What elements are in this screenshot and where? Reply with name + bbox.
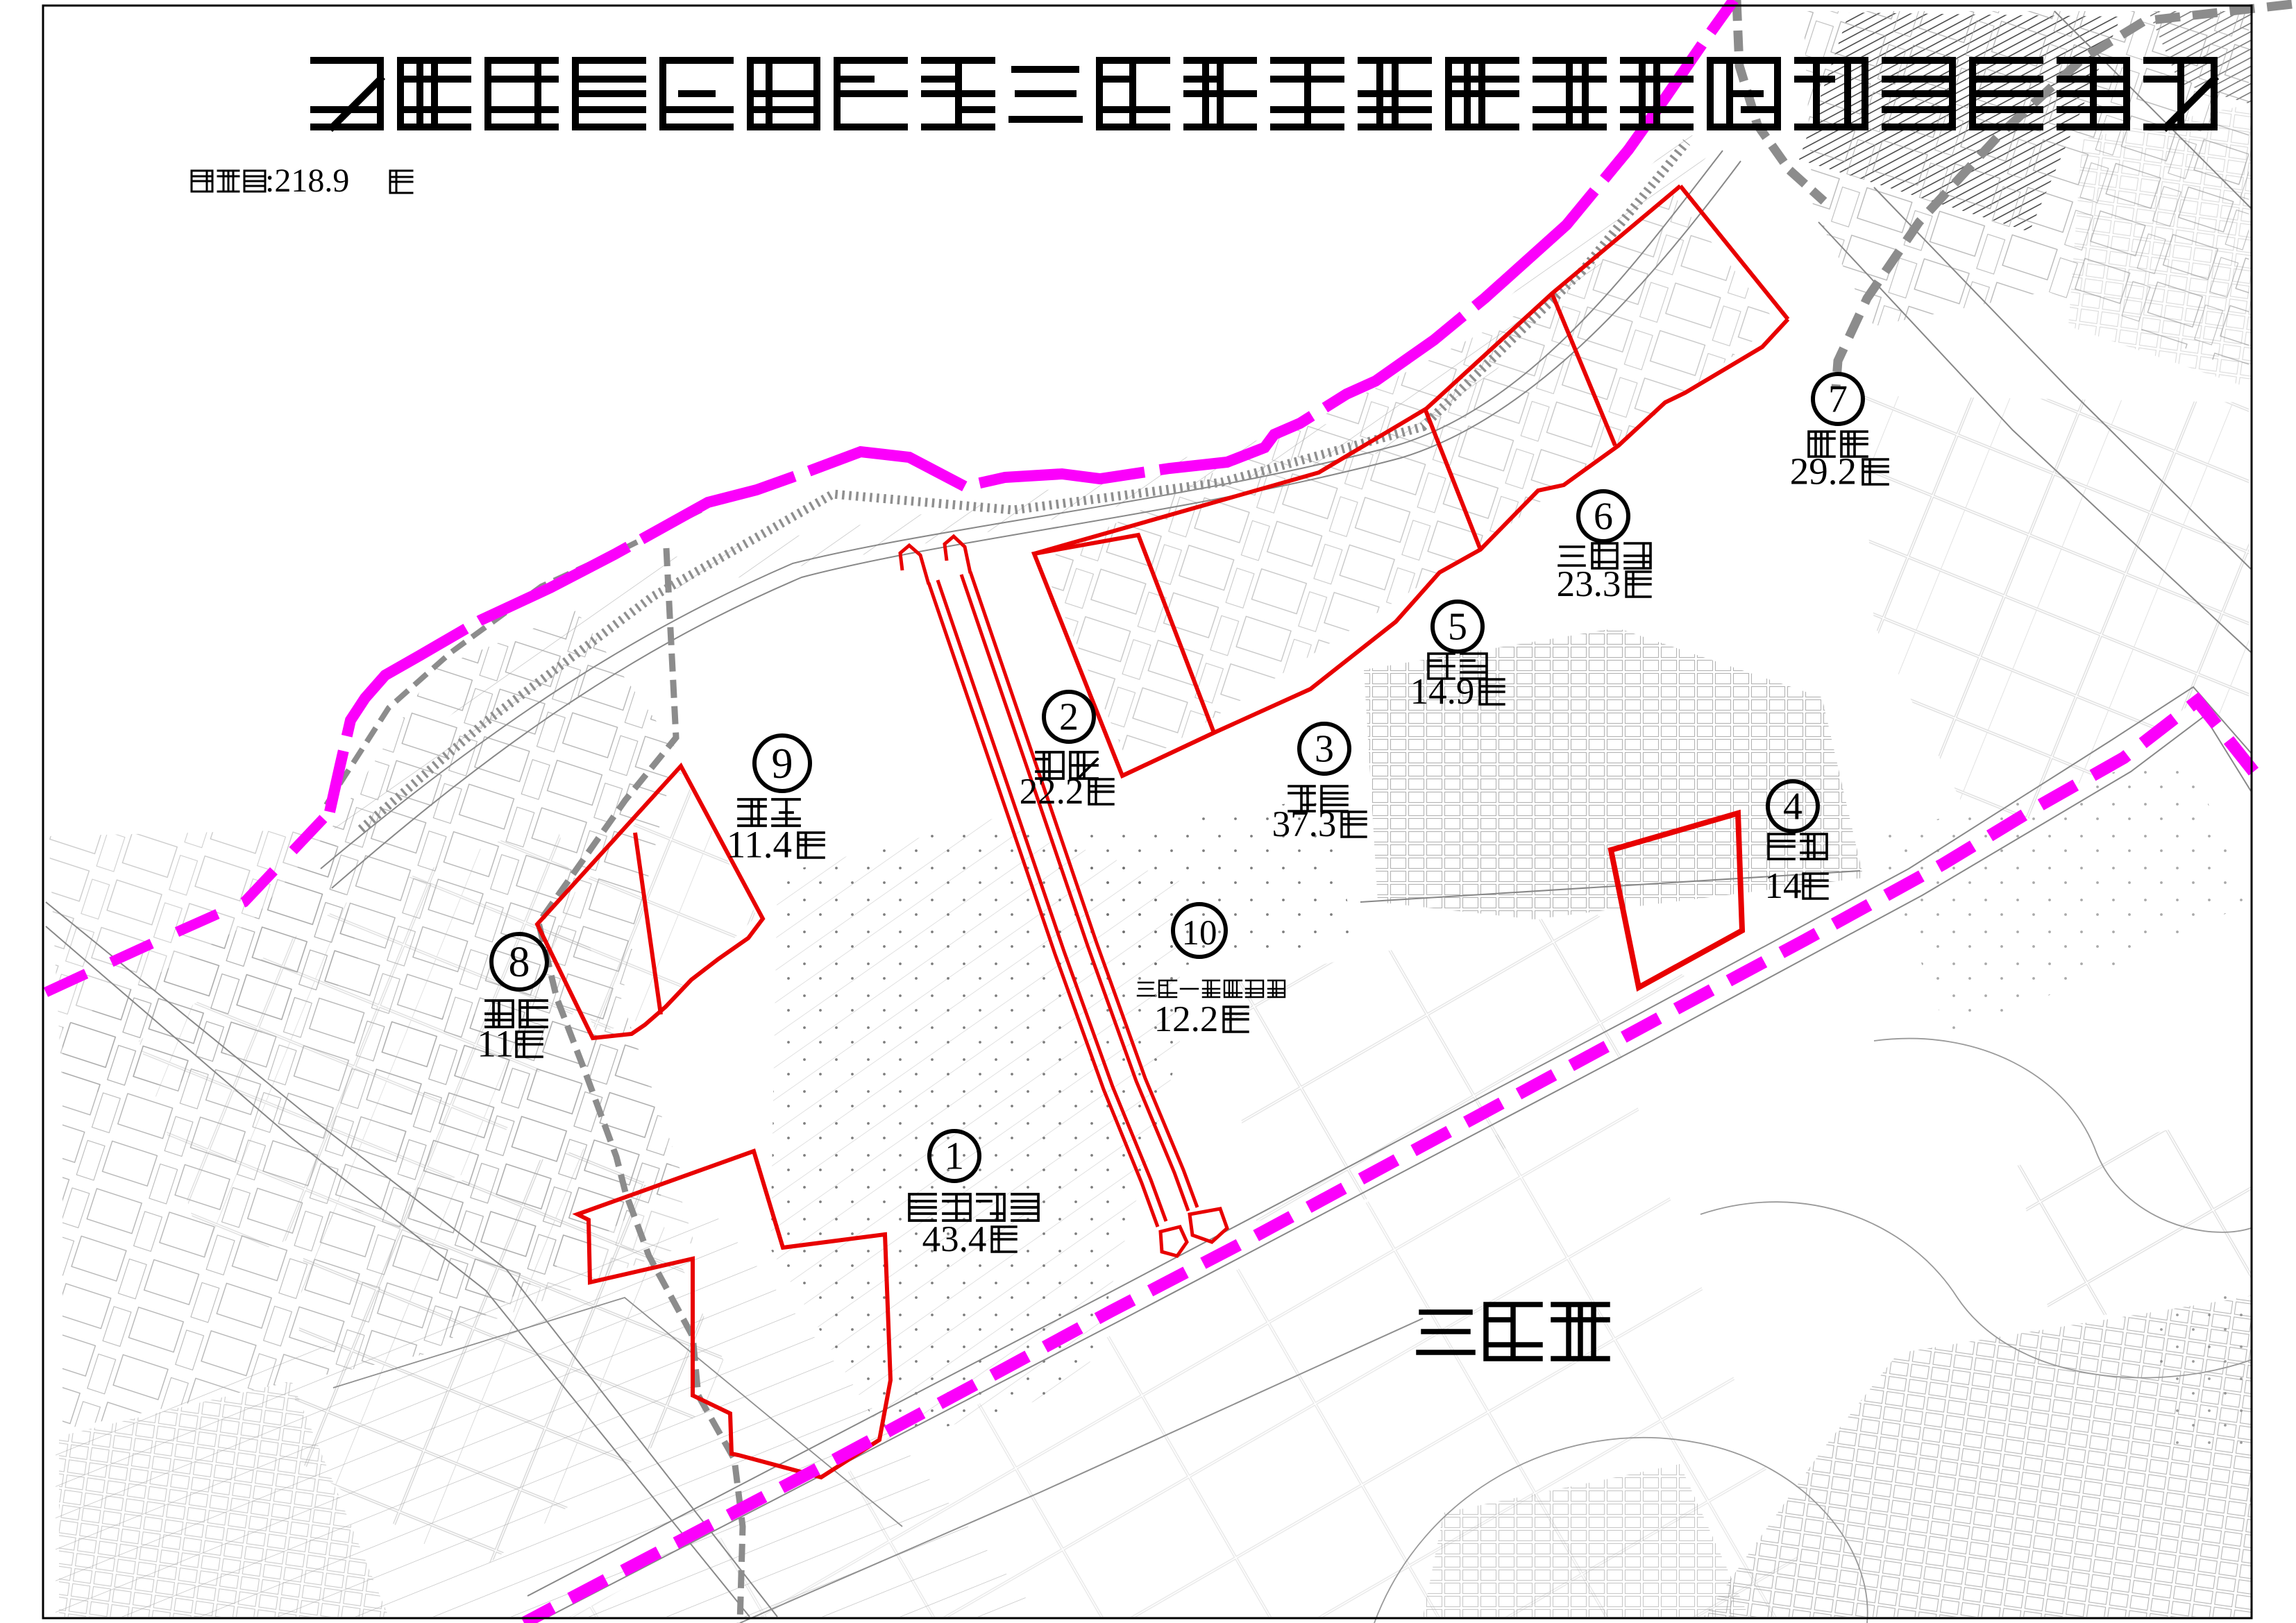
svg-text:6: 6 xyxy=(1594,495,1613,538)
svg-text:8: 8 xyxy=(509,939,530,986)
svg-text:3: 3 xyxy=(1315,728,1334,771)
svg-text:10: 10 xyxy=(1182,914,1217,953)
svg-text:23.3: 23.3 xyxy=(1557,564,1621,604)
svg-text:7: 7 xyxy=(1828,378,1848,421)
svg-text:11: 11 xyxy=(477,1023,514,1065)
svg-text:14: 14 xyxy=(1765,866,1802,906)
svg-text:14.9: 14.9 xyxy=(1410,672,1475,712)
svg-text:1: 1 xyxy=(945,1135,964,1178)
svg-text::218.9: :218.9 xyxy=(265,162,349,199)
svg-text:9: 9 xyxy=(772,740,793,788)
svg-text:5: 5 xyxy=(1448,606,1467,649)
svg-text:37.3: 37.3 xyxy=(1272,804,1337,844)
svg-text:43.4: 43.4 xyxy=(922,1219,987,1259)
svg-text:12.2: 12.2 xyxy=(1154,999,1219,1039)
svg-text:2: 2 xyxy=(1059,696,1079,739)
svg-text:22.2: 22.2 xyxy=(1020,772,1084,812)
svg-text:29.2: 29.2 xyxy=(1790,450,1857,493)
svg-text:4: 4 xyxy=(1783,785,1803,829)
svg-text:11.4: 11.4 xyxy=(727,824,792,866)
